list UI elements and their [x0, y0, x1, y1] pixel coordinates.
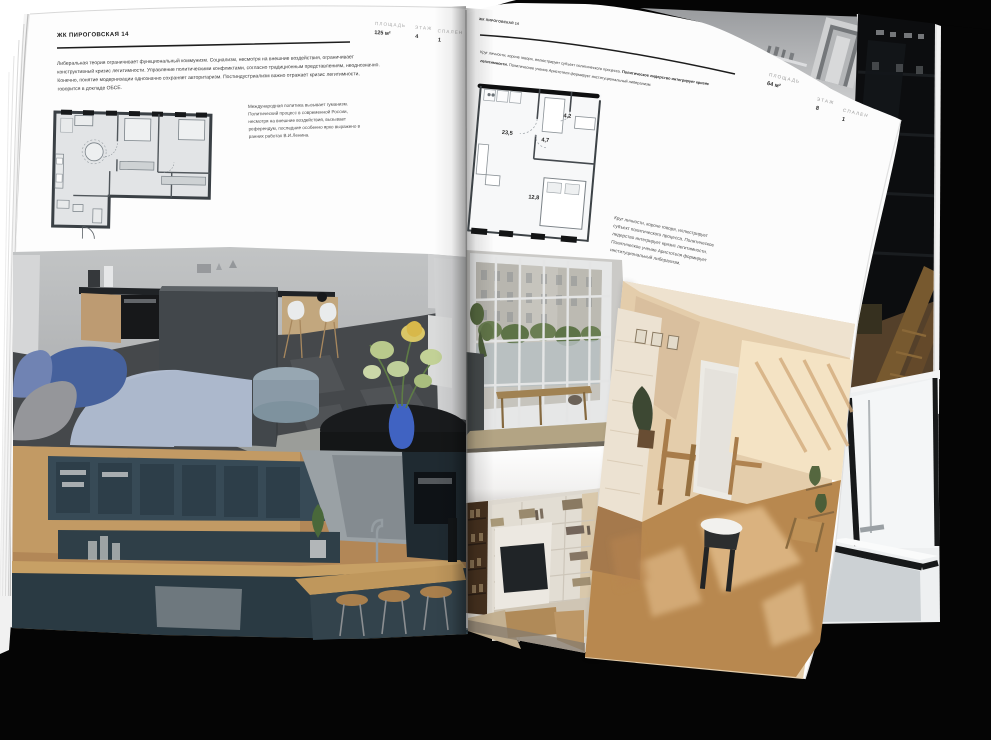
svg-text:4,7: 4,7 [541, 137, 549, 144]
svg-text:125 м²: 125 м² [374, 30, 391, 37]
svg-text:23,5: 23,5 [502, 130, 513, 137]
svg-text:4,2: 4,2 [563, 113, 571, 120]
svg-text:4: 4 [415, 34, 418, 40]
svg-text:12,8: 12,8 [528, 194, 539, 201]
svg-text:ЖК ПИРОГОВСКАЯ 14: ЖК ПИРОГОВСКАЯ 14 [56, 32, 129, 39]
